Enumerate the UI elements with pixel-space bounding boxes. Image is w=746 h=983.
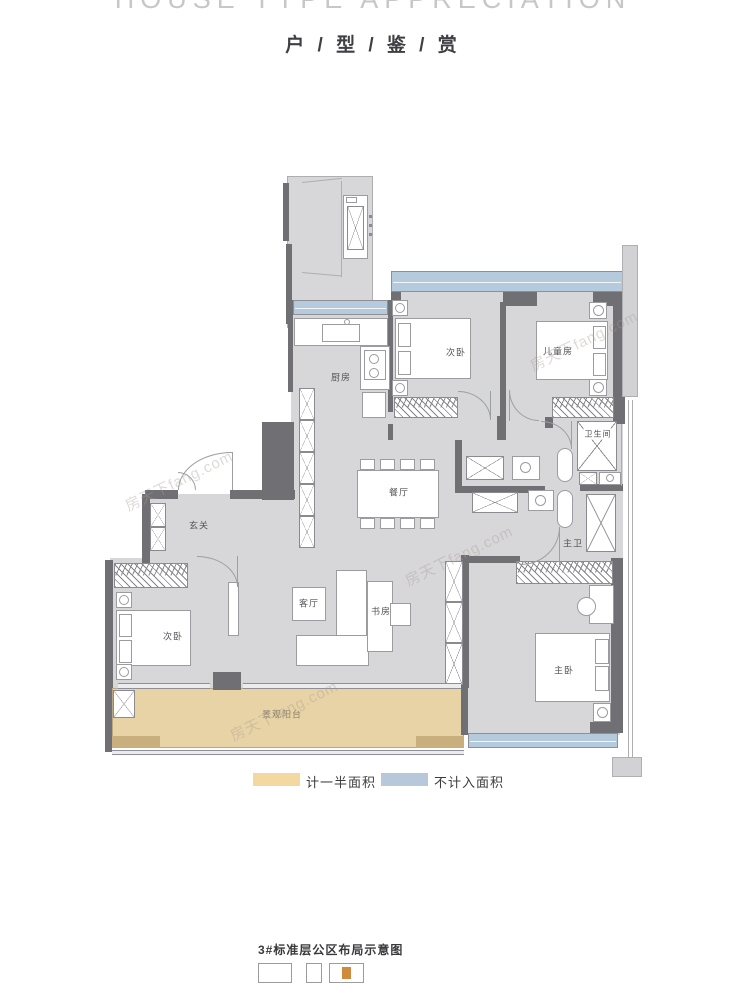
left-bedroom-door-leaf [237, 556, 238, 587]
stove-burner [369, 354, 379, 364]
storage-cabinet [472, 492, 518, 513]
wall [213, 672, 241, 690]
wall [283, 183, 289, 241]
lower-diagram-box [258, 963, 292, 983]
outer-line-bath [621, 424, 625, 486]
shaft-dot [369, 224, 372, 227]
page: { "header": { "title_en": "HOUSE TYPE AP… [0, 0, 746, 979]
room-label-living: 客厅 [299, 597, 319, 610]
wall [105, 688, 112, 752]
wardrobe [394, 397, 458, 418]
legend-label-half-area: 计一半面积 [306, 772, 376, 791]
outer-line-right [628, 400, 633, 758]
balcony-cabinet [113, 690, 135, 718]
nightstand-lamp [597, 707, 608, 718]
shower [586, 494, 616, 552]
legend-label-excluded-area: 不计入面积 [434, 772, 504, 791]
partition-cabinet [445, 602, 463, 643]
bed-pillow [595, 639, 609, 664]
kitchen-sink [322, 324, 360, 342]
wardrobe [552, 397, 614, 418]
study-chair [390, 603, 411, 626]
wall [455, 440, 462, 487]
room-label-foyer: 玄关 [189, 519, 209, 532]
foyer-cabinet [150, 503, 166, 527]
shaft-dot [369, 233, 372, 236]
wardrobe [114, 563, 188, 588]
nightstand-lamp [119, 667, 129, 677]
bed-pillow [119, 640, 132, 663]
room-label-master-bath: 主卫 [563, 537, 583, 550]
sofa-chaise [296, 635, 369, 666]
nightstand-lamp [593, 305, 604, 316]
window-living-south [243, 683, 461, 689]
shaft-vent [346, 197, 357, 203]
bathtub [557, 448, 573, 482]
floor-plan: 厨房 次卧 儿童房 卫生间 餐厅 玄关 次卧 客厅 书房 主卫 主卧 景观阳台 … [0, 0, 746, 820]
stove-burner [369, 368, 379, 378]
wall [503, 292, 537, 306]
bed-pillow [119, 614, 132, 637]
partition-cabinet [445, 643, 463, 685]
lower-diagram-box [306, 963, 322, 983]
nightstand-lamp [119, 595, 129, 605]
wall [105, 560, 113, 688]
nightstand-lamp [593, 382, 604, 393]
balcony-edge-right [416, 736, 464, 748]
balcony-edge-left [112, 736, 160, 748]
room-label-bedroom-top: 次卧 [446, 346, 466, 359]
hall-cabinet [299, 388, 315, 420]
room-label-master-bedroom: 主卧 [554, 664, 574, 677]
room-label-bathroom: 卫生间 [584, 429, 613, 440]
hall-cabinet [299, 516, 315, 548]
bath-door-leaf [571, 421, 572, 449]
hall-cabinet [299, 452, 315, 484]
nightstand-lamp [395, 383, 405, 393]
room-label-kitchen: 厨房 [331, 371, 351, 384]
dining-chair [380, 518, 395, 529]
wall [388, 424, 393, 440]
footer-caption: 3#标准层公区布局示意图 [258, 941, 403, 958]
lower-diagram-accent [342, 967, 351, 979]
room-label-study: 书房 [371, 605, 391, 618]
dining-chair [400, 518, 415, 529]
basin-bowl [520, 462, 531, 473]
outer-foot-right [612, 757, 642, 777]
bed-pillow [595, 666, 609, 691]
door-leaf-panel [228, 582, 239, 636]
bay-window-master [468, 733, 618, 748]
wardrobe [516, 561, 613, 584]
wall [461, 688, 468, 735]
shaft-duct [347, 206, 364, 250]
foyer-cabinet [150, 527, 166, 551]
balcony-railing [112, 750, 464, 755]
legend-swatch-half-area [253, 773, 300, 786]
hall-cabinet [299, 484, 315, 516]
bay-window-kitchen [293, 300, 388, 315]
bay-window-top [391, 271, 623, 292]
basin-bowl [535, 495, 546, 506]
room-label-bedroom-left: 次卧 [163, 630, 183, 643]
bedroom-door-leaf [490, 391, 491, 420]
room-label-dining: 餐厅 [389, 486, 409, 499]
basin-bowl [606, 474, 614, 482]
dining-chair [360, 459, 375, 470]
dining-chair [360, 518, 375, 529]
kitchen-faucet [344, 319, 350, 325]
bed-pillow [398, 323, 411, 347]
wall [590, 722, 623, 733]
wall [497, 416, 506, 440]
wall [500, 302, 506, 416]
wall [288, 300, 293, 392]
dining-chair [380, 459, 395, 470]
bathtub [557, 490, 573, 528]
vanity-cabinet [579, 472, 597, 485]
kitchen-fridge [362, 392, 386, 418]
hall-cabinet [299, 420, 315, 452]
master-bath-door-leaf [559, 527, 560, 565]
legend-swatch-excluded-area [381, 773, 428, 786]
wall [580, 484, 623, 491]
kids-door-leaf [509, 390, 510, 421]
nightstand-lamp [395, 303, 405, 313]
storage-cabinet [466, 456, 504, 480]
shaft-dot [369, 215, 372, 218]
wall [262, 422, 294, 500]
bed-pillow [398, 351, 411, 375]
dresser-stool [577, 597, 596, 616]
bed-pillow [593, 353, 606, 376]
dining-chair [420, 518, 435, 529]
dining-chair [400, 459, 415, 470]
window-bedroom-south [118, 683, 210, 689]
dining-chair [420, 459, 435, 470]
